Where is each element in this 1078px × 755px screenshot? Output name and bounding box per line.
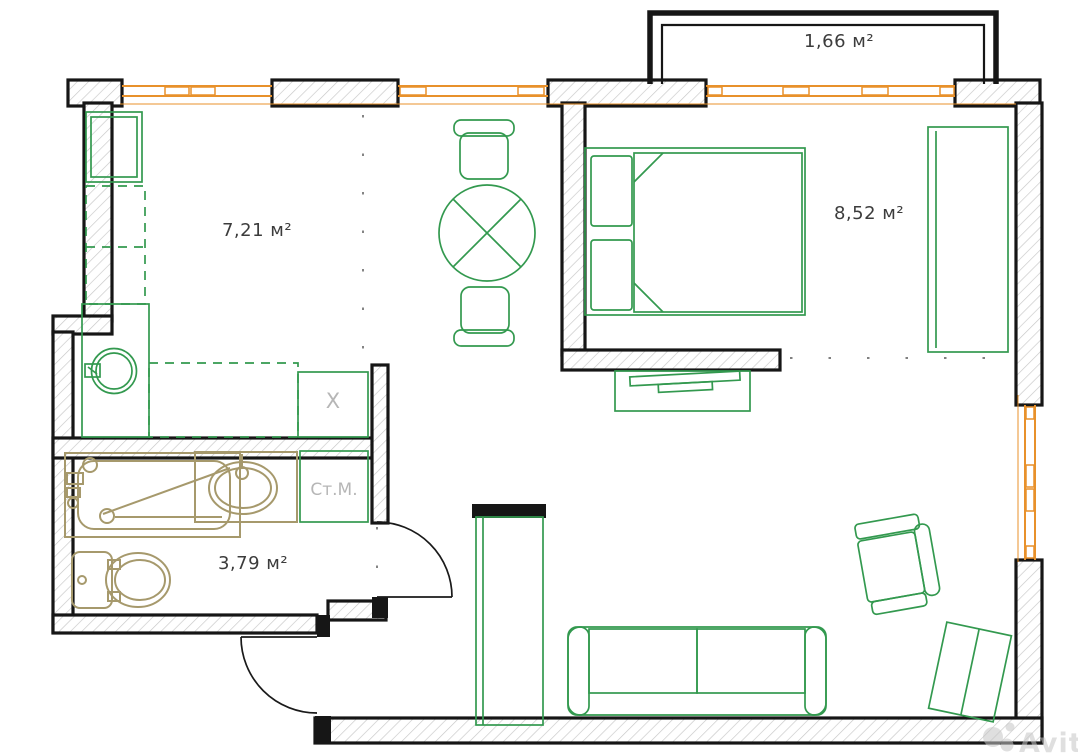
tv-stand bbox=[615, 371, 750, 411]
avito-logo-icon bbox=[983, 727, 1003, 747]
wall-left-lower bbox=[53, 332, 73, 632]
entry-door-jamb-bottom bbox=[315, 716, 331, 743]
sofa-arm-left bbox=[568, 627, 589, 715]
bedroom-balcony-window bbox=[706, 86, 955, 96]
mattress bbox=[634, 153, 802, 312]
wall-kitchen-bathroom-divider bbox=[53, 438, 388, 458]
dining-window bbox=[398, 86, 548, 96]
sofa-cushion-left bbox=[589, 629, 697, 693]
sofa-cushion-right bbox=[697, 629, 805, 693]
kitchen-furniture: X bbox=[82, 112, 368, 437]
wall-right-lower bbox=[1016, 560, 1042, 743]
bathroom-door bbox=[377, 522, 452, 597]
exterior-and-interior-walls bbox=[53, 80, 1042, 743]
bathroom-area-label: 3,79 м² bbox=[218, 553, 288, 574]
entry-door bbox=[241, 637, 317, 713]
entry-door-swing-arc bbox=[241, 637, 317, 713]
kitchen-window bbox=[122, 86, 272, 96]
bathroom-door-jamb bbox=[372, 597, 388, 618]
kitchen-sink bbox=[85, 349, 137, 394]
floor-plan-drawing: X bbox=[0, 0, 1078, 755]
double-bed bbox=[585, 148, 805, 315]
wall-left-upper bbox=[84, 103, 112, 321]
bathtub bbox=[65, 453, 240, 537]
blanket-fold-top bbox=[634, 153, 663, 182]
avito-watermark-text: Avito bbox=[1019, 728, 1078, 755]
ottoman bbox=[929, 622, 1012, 722]
wall-bottom bbox=[315, 718, 1042, 743]
bedroom-area-label: 8,52 м² bbox=[834, 203, 904, 224]
living-room-furniture bbox=[476, 512, 1011, 725]
sofa-arm-right bbox=[805, 627, 826, 715]
bedroom-wardrobe bbox=[928, 127, 1008, 352]
pillow-bottom bbox=[591, 240, 632, 310]
wall-right-upper bbox=[1016, 103, 1042, 405]
pillow-top bbox=[591, 156, 632, 226]
kitchen-counter-bottom bbox=[149, 363, 298, 437]
wall-bathroom-bottom bbox=[53, 615, 317, 633]
living-room-wardrobe bbox=[476, 517, 543, 725]
washing-machine-label: Ст.М. bbox=[310, 480, 357, 500]
entry-door-jamb-top bbox=[317, 615, 330, 637]
wardrobe-wall-stub bbox=[472, 504, 546, 518]
bathroom-door-swing-arc bbox=[377, 522, 452, 597]
stove-mark-label: X bbox=[326, 389, 340, 413]
wall-top-pier-kitchen-dining bbox=[272, 80, 398, 106]
dining-chair-bottom bbox=[454, 287, 514, 346]
kitchen-area-label: 7,21 м² bbox=[222, 220, 292, 241]
bathroom-sink bbox=[195, 452, 297, 522]
wall-kitchen-right bbox=[372, 365, 388, 523]
sofa bbox=[568, 627, 826, 715]
dining-table bbox=[439, 185, 535, 281]
balcony-area-label: 1,66 м² bbox=[804, 31, 874, 52]
dining-set bbox=[439, 120, 535, 346]
blanket-fold-bottom bbox=[634, 283, 663, 312]
bathtub-drain bbox=[100, 509, 114, 523]
wall-bedroom-bottom bbox=[562, 350, 780, 370]
toilet bbox=[72, 552, 170, 608]
floor-plan: X bbox=[0, 0, 1078, 755]
washing-machine: Ст.М. bbox=[300, 451, 368, 522]
dining-chair-top bbox=[454, 120, 514, 179]
wall-bedroom-left bbox=[562, 103, 585, 355]
bathroom-fixtures: Ст.М. bbox=[65, 451, 368, 608]
living-room-window bbox=[1018, 395, 1035, 562]
armchair bbox=[854, 512, 942, 615]
